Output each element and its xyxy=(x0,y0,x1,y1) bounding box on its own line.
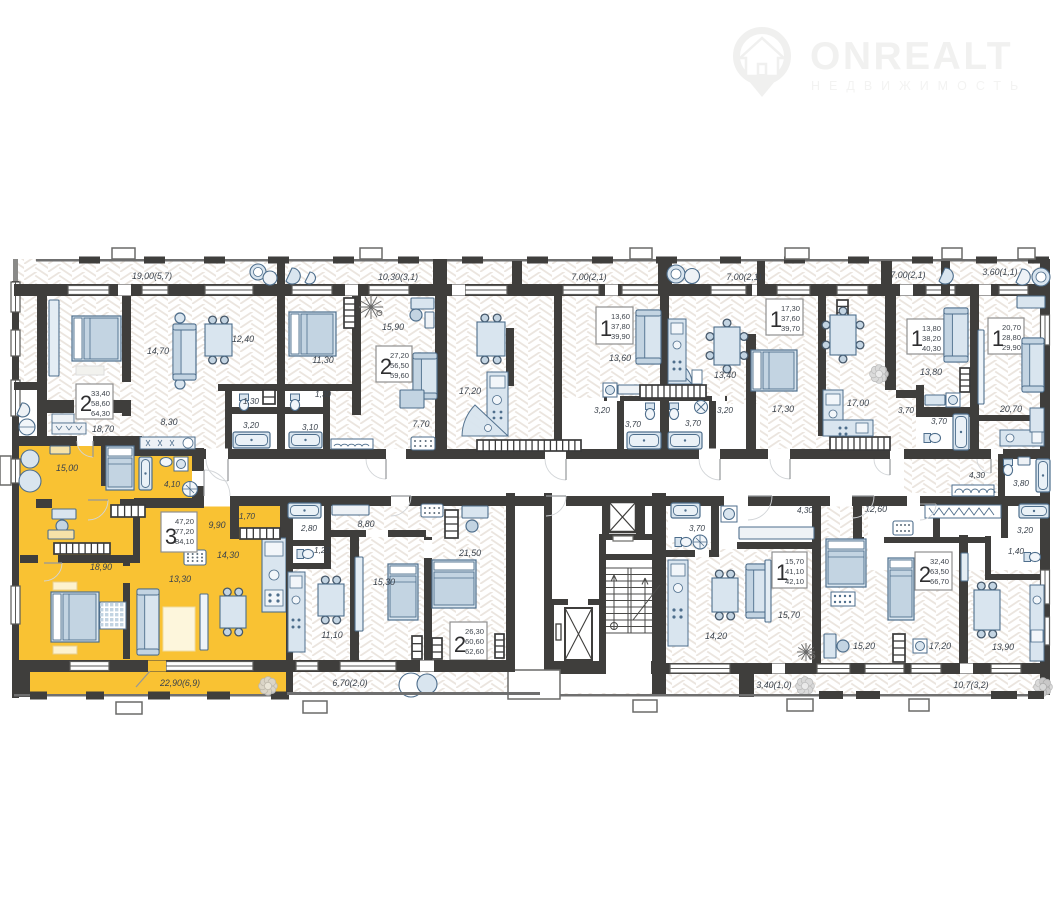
svg-text:12,40: 12,40 xyxy=(232,334,254,344)
svg-text:15,70: 15,70 xyxy=(785,557,804,566)
svg-text:77,20: 77,20 xyxy=(175,527,194,536)
svg-text:66,70: 66,70 xyxy=(930,577,949,586)
svg-text:37,80: 37,80 xyxy=(611,322,630,331)
svg-text:15,00: 15,00 xyxy=(56,463,78,473)
svg-text:1,20: 1,20 xyxy=(314,546,330,555)
svg-text:1,70: 1,70 xyxy=(239,512,255,521)
svg-text:10,30(3,1): 10,30(3,1) xyxy=(378,272,418,282)
svg-text:60,60: 60,60 xyxy=(465,637,484,646)
svg-text:15,20: 15,20 xyxy=(853,641,875,651)
svg-text:7,00(2,1): 7,00(2,1) xyxy=(571,272,606,282)
svg-text:27,20: 27,20 xyxy=(390,351,409,360)
svg-text:3,10: 3,10 xyxy=(302,423,318,432)
svg-text:7,00(2,1): 7,00(2,1) xyxy=(890,270,925,280)
svg-text:17,20: 17,20 xyxy=(459,386,481,396)
svg-text:1,30: 1,30 xyxy=(315,390,331,399)
svg-text:39,70: 39,70 xyxy=(781,324,800,333)
svg-text:17,30: 17,30 xyxy=(781,304,800,313)
svg-text:17,30: 17,30 xyxy=(772,404,794,414)
svg-text:1,40: 1,40 xyxy=(1008,547,1024,556)
svg-text:41,10: 41,10 xyxy=(785,567,804,576)
svg-text:15,90: 15,90 xyxy=(382,322,404,332)
svg-text:58,60: 58,60 xyxy=(91,399,110,408)
svg-text:3,70: 3,70 xyxy=(931,417,947,426)
svg-text:32,40: 32,40 xyxy=(930,557,949,566)
svg-text:13,80: 13,80 xyxy=(920,367,942,377)
svg-text:11,10: 11,10 xyxy=(321,630,342,640)
svg-text:1,30: 1,30 xyxy=(243,397,259,406)
svg-text:4,30: 4,30 xyxy=(797,506,813,515)
svg-text:3,20: 3,20 xyxy=(594,406,610,415)
svg-text:11,30: 11,30 xyxy=(312,355,333,365)
svg-text:29,90: 29,90 xyxy=(1002,343,1021,352)
svg-text:18,70: 18,70 xyxy=(92,424,114,434)
svg-text:7,00(2,1): 7,00(2,1) xyxy=(726,272,761,282)
svg-text:17,20: 17,20 xyxy=(929,641,951,651)
svg-text:17,00: 17,00 xyxy=(847,398,869,408)
svg-text:13,90: 13,90 xyxy=(992,642,1014,652)
svg-text:18,90: 18,90 xyxy=(90,562,112,572)
svg-text:15,70: 15,70 xyxy=(778,610,800,620)
svg-text:13,60: 13,60 xyxy=(611,312,630,321)
svg-text:39,90: 39,90 xyxy=(611,332,630,341)
svg-text:63,50: 63,50 xyxy=(930,567,949,576)
svg-text:59,60: 59,60 xyxy=(390,371,409,380)
svg-text:3,20: 3,20 xyxy=(717,406,733,415)
svg-text:20,70: 20,70 xyxy=(1002,323,1021,332)
svg-text:22,90(6,9): 22,90(6,9) xyxy=(159,678,200,688)
svg-text:14,30: 14,30 xyxy=(217,550,239,560)
svg-text:64,30: 64,30 xyxy=(91,409,110,418)
svg-text:13,60: 13,60 xyxy=(609,353,631,363)
svg-text:10,7(3,2): 10,7(3,2) xyxy=(953,680,988,690)
svg-text:13,80: 13,80 xyxy=(922,324,941,333)
svg-text:13,40: 13,40 xyxy=(714,370,736,380)
svg-text:19,00(5,7): 19,00(5,7) xyxy=(132,271,172,281)
svg-text:40,30: 40,30 xyxy=(922,344,941,353)
svg-text:28,80: 28,80 xyxy=(1002,333,1021,342)
svg-text:6,70(2,0): 6,70(2,0) xyxy=(332,678,367,688)
svg-text:3,40(1,0): 3,40(1,0) xyxy=(756,680,791,690)
svg-text:62,60: 62,60 xyxy=(465,647,484,656)
svg-text:33,40: 33,40 xyxy=(91,389,110,398)
svg-text:14,20: 14,20 xyxy=(705,631,727,641)
svg-text:14,70: 14,70 xyxy=(147,346,169,356)
svg-text:15,30: 15,30 xyxy=(373,577,395,587)
svg-text:3,70: 3,70 xyxy=(625,420,641,429)
svg-text:47,20: 47,20 xyxy=(175,517,194,526)
svg-text:84,10: 84,10 xyxy=(175,537,194,546)
svg-text:3,70: 3,70 xyxy=(898,406,914,415)
svg-text:21,50: 21,50 xyxy=(458,548,481,558)
svg-text:7,70: 7,70 xyxy=(412,419,429,429)
svg-text:3,20: 3,20 xyxy=(243,421,259,430)
svg-text:4,10: 4,10 xyxy=(164,480,180,489)
svg-text:13,30: 13,30 xyxy=(169,574,191,584)
svg-text:3,20: 3,20 xyxy=(1017,526,1033,535)
svg-text:56,50: 56,50 xyxy=(390,361,409,370)
svg-text:8,30: 8,30 xyxy=(160,417,177,427)
svg-text:20,70: 20,70 xyxy=(999,404,1022,414)
svg-text:12,60: 12,60 xyxy=(865,504,887,514)
svg-text:4,30: 4,30 xyxy=(969,471,985,480)
svg-text:3,60(1,1): 3,60(1,1) xyxy=(982,267,1017,277)
svg-text:3,80: 3,80 xyxy=(1013,479,1029,488)
svg-text:37,60: 37,60 xyxy=(781,314,800,323)
svg-text:3,70: 3,70 xyxy=(689,524,705,533)
svg-text:42,10: 42,10 xyxy=(785,577,804,586)
svg-text:ONREALT: ONREALT xyxy=(810,35,1013,78)
svg-text:9,90: 9,90 xyxy=(208,520,225,530)
svg-text:2,80: 2,80 xyxy=(300,524,317,533)
svg-text:38,20: 38,20 xyxy=(922,334,941,343)
svg-text:8,80: 8,80 xyxy=(357,519,374,529)
svg-text:НЕДВИЖИМОСТЬ: НЕДВИЖИМОСТЬ xyxy=(811,79,1027,93)
svg-text:3,70: 3,70 xyxy=(685,419,701,428)
svg-text:26,30: 26,30 xyxy=(465,627,484,636)
